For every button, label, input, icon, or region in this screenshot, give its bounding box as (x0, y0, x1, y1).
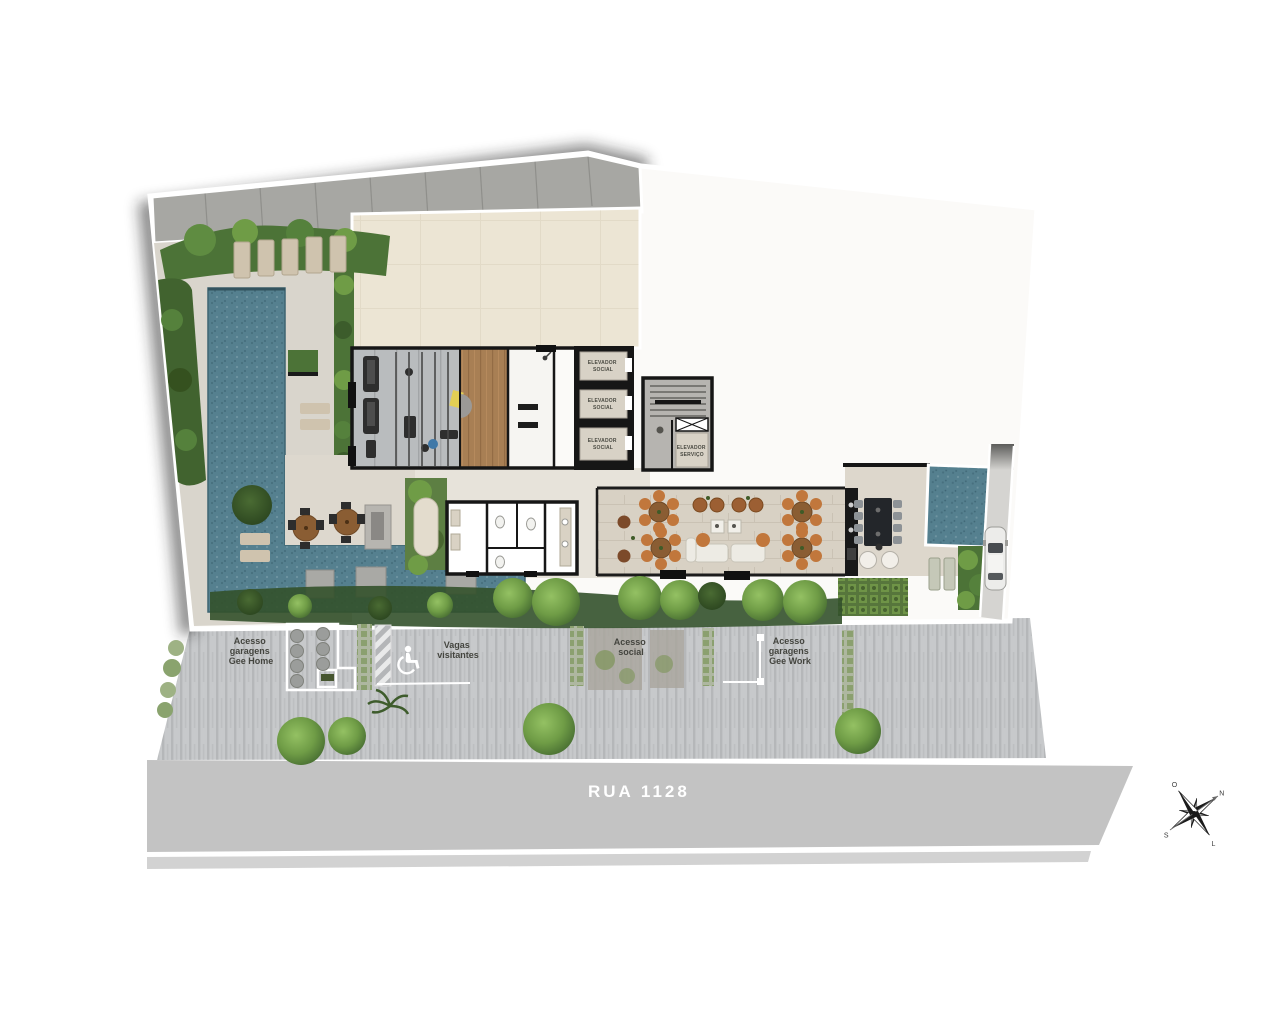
door (348, 382, 356, 408)
planter (288, 350, 318, 372)
car (983, 527, 1008, 590)
building-footprint (352, 208, 640, 348)
elevator-bank: ELEVADOR SOCIAL ELEVADOR SOCIAL ELEVADOR… (574, 346, 634, 470)
ground-cover (595, 650, 615, 670)
pool-lounger (944, 558, 955, 590)
bush (160, 682, 176, 698)
round-table (882, 552, 899, 569)
pool-lounger (929, 558, 940, 590)
gate-planter (321, 674, 334, 681)
planter-box (724, 571, 750, 580)
corridor (554, 348, 576, 468)
elevator-cell-social: ELEVADOR SOCIAL (580, 390, 632, 418)
permeable-paver-strip (357, 624, 372, 690)
svg-text:ELEVADOR SERVIÇO: ELEVADOR SERVIÇO (677, 445, 708, 458)
compass-north-label: N (1219, 791, 1224, 798)
gym (348, 345, 576, 468)
gym-ball (428, 439, 438, 449)
pouf (696, 533, 710, 547)
pool-plant (232, 485, 272, 525)
bush (157, 702, 173, 718)
pouf (756, 533, 770, 547)
label-acesso-social: Acesso social (614, 637, 649, 657)
street-tree (835, 708, 881, 754)
hatched-strip (375, 625, 391, 686)
site-plan-canvas: RUA 1128 (0, 0, 1284, 1025)
door (524, 571, 537, 577)
door (536, 345, 556, 352)
elevator-cell-social: ELEVADOR SOCIAL (580, 352, 632, 380)
permeable-paver-strip (702, 628, 714, 686)
door (348, 446, 356, 466)
elevator-cell-social: ELEVADOR SOCIAL (580, 428, 632, 460)
compass-east-label: L (1212, 841, 1216, 848)
street: RUA 1128 (147, 760, 1133, 869)
site: ELEVADOR SOCIAL ELEVADOR SOCIAL ELEVADOR… (150, 153, 1037, 629)
street-tree (277, 717, 325, 765)
street-name-label: RUA 1128 (588, 782, 690, 801)
label-acesso-garagens-home: Acesso garagens Gee Home (229, 636, 274, 666)
label-acesso-garagens-work: Acesso garagens Gee Work (769, 636, 812, 666)
compass-rose-icon: N L S O (1164, 782, 1224, 848)
street-tree (523, 703, 575, 755)
ramp-shading (990, 444, 1014, 470)
daybed (414, 498, 438, 556)
door (466, 571, 479, 577)
compass-west-label: O (1172, 782, 1178, 789)
work-pool (926, 465, 991, 547)
armchair (618, 550, 631, 563)
street-tree (328, 717, 366, 755)
round-table (860, 552, 877, 569)
planter-box (660, 570, 686, 579)
bush (168, 640, 184, 656)
formal-hedge (838, 578, 908, 616)
stair-core: ELEVADOR SERVIÇO (643, 378, 712, 470)
permeable-paver-strip (570, 626, 584, 686)
bush (163, 659, 181, 677)
elevator-pit (676, 418, 708, 431)
floor-plan-image: RUA 1128 (0, 0, 1284, 1025)
pool-lounger (240, 550, 270, 562)
elevator-cell-servico: ELEVADOR SERVIÇO (676, 433, 708, 467)
lounge-terrace (597, 488, 845, 580)
armchair (618, 516, 631, 529)
compass-south-label: S (1164, 833, 1169, 840)
far-curb-strip (147, 851, 1091, 869)
parking-bay-line (377, 683, 470, 684)
ground-cover (619, 668, 635, 684)
street-surface (147, 760, 1133, 852)
ground-cover (655, 655, 673, 673)
pool-lounger (240, 533, 270, 545)
